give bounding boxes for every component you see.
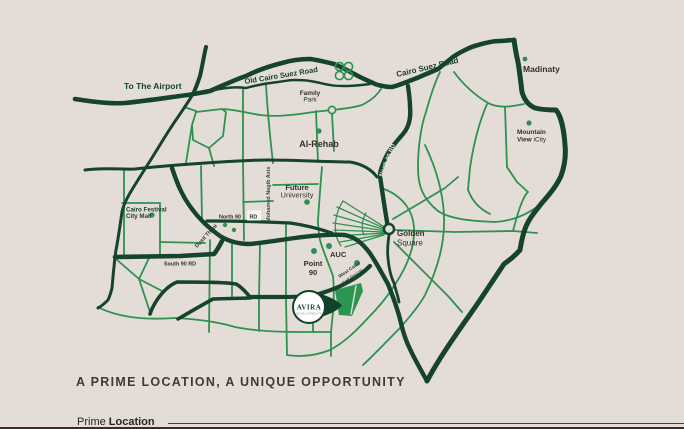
svg-text:DEVELOPMENTS: DEVELOPMENTS <box>296 312 322 316</box>
svg-text:Park: Park <box>303 97 317 104</box>
svg-text:Point: Point <box>304 259 323 268</box>
svg-text:University: University <box>281 191 314 200</box>
svg-text:City Mall: City Mall <box>126 213 152 220</box>
svg-text:Mountain: Mountain <box>517 129 546 136</box>
svg-text:AVIRA: AVIRA <box>297 304 322 312</box>
svg-text:90: 90 <box>309 268 317 277</box>
svg-text:RD: RD <box>250 215 258 221</box>
svg-text:To The Airport: To The Airport <box>124 81 182 91</box>
svg-text:Madinaty: Madinaty <box>523 64 560 74</box>
svg-text:South 90 RD: South 90 RD <box>164 262 196 268</box>
svg-text:Mohamed Nagib Axis: Mohamed Nagib Axis <box>266 167 272 222</box>
svg-text:AUC: AUC <box>330 250 347 259</box>
svg-text:Golden: Golden <box>397 229 425 238</box>
svg-text:View iCity: View iCity <box>517 137 547 144</box>
svg-text:Square: Square <box>397 239 423 248</box>
svg-text:North 90: North 90 <box>219 215 241 221</box>
svg-text:Al-Rehab: Al-Rehab <box>299 139 339 149</box>
